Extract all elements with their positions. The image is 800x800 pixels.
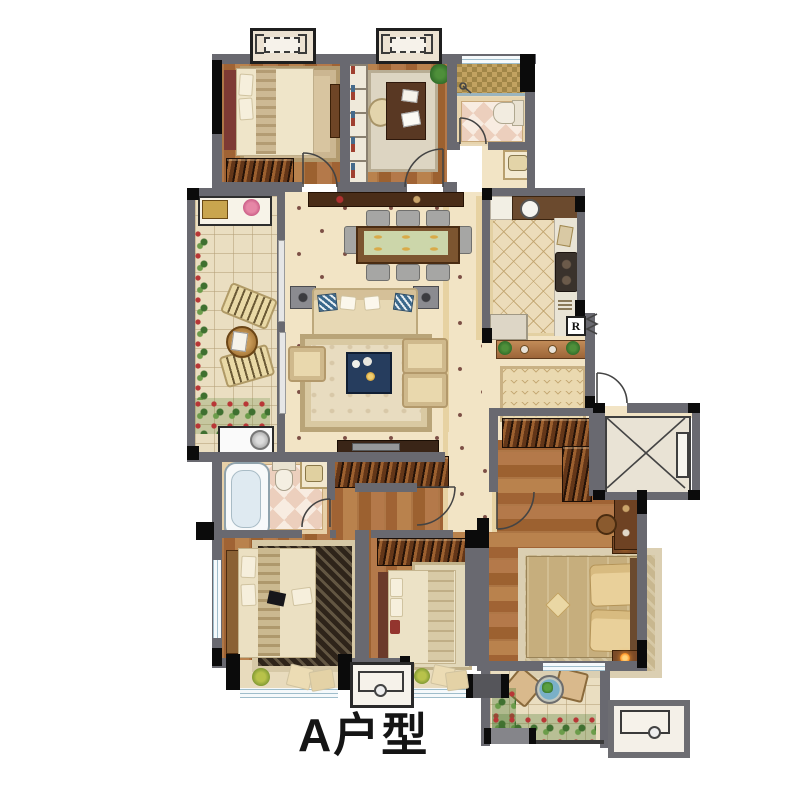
console-plant: [498, 341, 512, 355]
bedroom-2-pillow: [390, 578, 403, 597]
balcony-parapet: [530, 740, 604, 744]
dining-chair: [426, 264, 450, 281]
black-wall: [575, 196, 585, 212]
bay-cushion: [308, 668, 335, 692]
dining-chair: [366, 264, 390, 281]
black-wall: [196, 522, 214, 540]
flower-plate: [243, 199, 260, 216]
ac-bracket-icon: [255, 34, 264, 54]
closet-wardrobe-right: [562, 446, 592, 502]
gold-flower: [366, 372, 375, 381]
ac-bracket-icon: [381, 34, 390, 54]
wall: [692, 403, 700, 500]
ac-bracket-icon: [298, 34, 307, 54]
wall: [337, 182, 350, 192]
black-wall: [477, 518, 489, 534]
ac-bracket-icon: [424, 34, 433, 54]
ac-unit-icon: [390, 37, 426, 53]
wall: [340, 62, 350, 182]
black-wall: [575, 300, 585, 316]
black-wall: [187, 446, 199, 460]
dining-chair: [396, 264, 420, 281]
bedroom-3-cushion: [291, 587, 313, 607]
sliding-door-panel: [278, 240, 285, 322]
wash-basin-2: [305, 465, 323, 482]
console-knob: [548, 345, 557, 354]
black-wall: [226, 654, 240, 690]
wall: [187, 452, 445, 462]
magazine: [231, 331, 248, 352]
bedroom-1-bench: [330, 84, 340, 138]
wall: [355, 483, 417, 492]
tea-set: [363, 357, 372, 366]
wall: [371, 530, 453, 538]
tv: [352, 443, 400, 451]
window: [543, 663, 605, 671]
study-papers: [401, 89, 419, 103]
bay-plant: [252, 668, 270, 686]
bedroom-1-pillow: [238, 98, 254, 121]
tea-set: [352, 360, 360, 368]
wash-basin: [508, 155, 528, 171]
ac-fan-icon: [374, 684, 387, 697]
bay-cushion: [445, 670, 469, 692]
window: [462, 56, 520, 64]
sliding-door-panel: [279, 332, 286, 414]
dining-chair: [366, 210, 390, 227]
armchair: [402, 338, 448, 374]
shower-glass: [457, 93, 525, 96]
black-wall: [501, 674, 509, 698]
shower-area: [457, 62, 525, 95]
black-wall: [688, 490, 700, 500]
dining-chair: [426, 210, 450, 227]
black-wall: [688, 403, 700, 413]
wall: [489, 412, 498, 492]
bedroom-1-pillow: [238, 74, 254, 97]
black-wall: [520, 54, 535, 92]
plan-title: A户型: [298, 699, 429, 765]
wall: [350, 182, 407, 192]
sofa-pillow-blue: [393, 293, 414, 312]
wall: [187, 188, 285, 196]
armchair: [402, 372, 448, 408]
refrigerator-label: R: [566, 316, 586, 336]
black-wall: [637, 490, 647, 514]
wall: [355, 530, 369, 658]
black-wall: [187, 188, 199, 200]
flower-strip: [194, 228, 210, 400]
wall: [443, 182, 457, 192]
bedroom-3-pillow: [240, 556, 256, 579]
black-wall: [212, 648, 222, 666]
bedroom-2-pillow: [390, 598, 403, 617]
kitchen-sink: [520, 199, 540, 219]
kitchen-corner-cabinet: [490, 196, 514, 220]
console-plant: [566, 341, 580, 355]
toilet-bowl: [493, 102, 515, 124]
washing-machine-drum: [250, 430, 270, 450]
study-books: [351, 66, 355, 178]
console-knob: [520, 345, 529, 354]
wall: [489, 408, 598, 416]
ac-unit-icon: [620, 710, 670, 734]
wall: [212, 530, 302, 538]
black-wall: [529, 728, 536, 744]
wall: [465, 530, 489, 666]
black-wall: [212, 60, 222, 134]
master-stool: [596, 514, 617, 535]
wall: [330, 530, 336, 538]
dining-chair: [396, 210, 420, 227]
black-wall: [637, 640, 647, 668]
bedroom-1-headboard: [224, 70, 236, 150]
ac-fan-icon: [648, 726, 661, 739]
wall: [447, 62, 457, 150]
sofa-pillow: [339, 295, 356, 311]
toilet-2-bowl: [275, 469, 293, 491]
black-wall: [593, 403, 605, 413]
black-wall: [482, 328, 492, 343]
bedroom-1-quilt: [256, 68, 276, 154]
kitchen-utensils: [558, 298, 572, 310]
black-wall: [484, 728, 491, 744]
window: [213, 560, 221, 638]
ac-unit-icon: [264, 37, 300, 53]
kitchen-counter-bottom: [490, 314, 528, 340]
black-wall: [482, 188, 492, 200]
wall: [447, 142, 460, 150]
elevator-door-slot: [676, 432, 689, 478]
bedroom-3-pillow: [240, 584, 256, 607]
wall: [482, 188, 585, 196]
armchair: [288, 346, 326, 382]
floor-plan: R A户型: [0, 0, 800, 800]
kitchen-stove: [555, 252, 578, 292]
wall: [187, 188, 195, 460]
table-plant: [542, 682, 553, 693]
wall: [589, 416, 597, 496]
black-wall: [593, 490, 605, 500]
bathtub-basin: [231, 470, 261, 528]
table-runner: [364, 231, 448, 255]
sideboard: [308, 192, 464, 207]
closet-wardrobe-top: [502, 418, 592, 448]
wall: [482, 188, 490, 343]
sofa-pillow: [363, 295, 380, 311]
wall: [327, 460, 335, 500]
bedroom-2-red-pillow: [390, 620, 400, 634]
bedroom-2-headboard: [378, 572, 388, 660]
bedroom-2-quilt: [428, 570, 454, 662]
bay-plant: [414, 668, 430, 684]
sofa-pillow-blue: [317, 293, 338, 312]
wall: [595, 492, 700, 500]
laundry-sink: [202, 200, 228, 219]
master-desk: [614, 494, 638, 550]
